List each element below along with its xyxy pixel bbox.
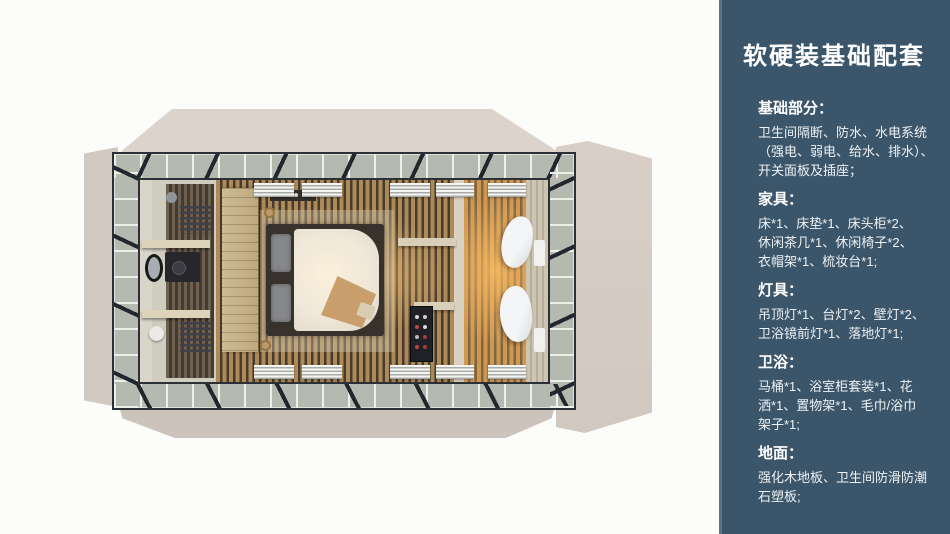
warm-lit-floor — [464, 180, 526, 382]
bed — [266, 224, 384, 336]
section-flooring: 地面： 强化木地板、卫生间防滑防潮 石塑板; — [758, 444, 936, 506]
pillow — [271, 284, 291, 322]
ceiling-beam — [436, 365, 474, 379]
towel-radiator — [180, 206, 212, 234]
bedding-roll — [534, 240, 545, 266]
section-basics: 基础部分： 卫生间隔断、防水、水电系统 （强电、弱电、给水、排水）、 开关面板及… — [758, 99, 936, 180]
section-line: 架子*1; — [758, 415, 936, 434]
section-line: 休闲茶几*1、休闲椅子*2、 — [758, 233, 936, 252]
section-heading: 基础部分： — [758, 99, 936, 119]
section-line: 强化木地板、卫生间防滑防潮 — [758, 468, 936, 487]
ceiling-beam — [488, 183, 526, 197]
minibar-bottles — [415, 315, 419, 319]
section-line: 开关面板及插座； — [758, 161, 936, 180]
ceiling-beam — [488, 365, 526, 379]
section-line: 石塑板; — [758, 487, 936, 506]
ceiling-beam — [390, 183, 430, 197]
washbasin-cabinet — [165, 252, 200, 282]
spec-sections: 基础部分： 卫生间隔断、防水、水电系统 （强电、弱电、给水、排水）、 开关面板及… — [758, 99, 936, 506]
section-line: 吊顶灯*1、台灯*2、壁灯*2、 — [758, 305, 936, 324]
ceiling-beam — [254, 183, 294, 197]
open-shelf — [398, 238, 456, 246]
section-line: 床*1、床垫*1、床头柜*2、 — [758, 214, 936, 233]
floorplan-render — [0, 0, 719, 534]
bathroom-shelf — [142, 310, 210, 318]
basket — [264, 207, 275, 218]
bedding-roll — [534, 328, 545, 352]
section-furniture: 家具： 床*1、床垫*1、床头柜*2、 休闲茶几*1、休闲椅子*2、 衣帽架*1… — [758, 190, 936, 271]
divider-wall — [454, 180, 464, 382]
frame-braces-bottom — [114, 384, 574, 408]
ceiling-beam — [390, 365, 430, 379]
section-line: 卫生间隔断、防水、水电系统 — [758, 123, 936, 142]
minibar-cabinet — [410, 306, 433, 362]
section-heading: 地面： — [758, 444, 936, 464]
section-heading: 卫浴： — [758, 353, 936, 373]
section-heading: 灯具： — [758, 281, 936, 301]
steel-frame-walkway — [112, 152, 576, 410]
ceiling-beam — [436, 183, 474, 197]
section-line: 衣帽架*1、梳妆台*1; — [758, 252, 936, 271]
shower-head — [166, 192, 177, 203]
section-line: 马桶*1、浴室柜套装*1、花 — [758, 377, 936, 396]
panel-title: 软硬装基础配套 — [743, 42, 936, 72]
headboard-panel — [222, 188, 258, 352]
section-heading: 家具： — [758, 190, 936, 210]
section-line: （强电、弱电、给水、排水）、 — [758, 142, 936, 161]
frame-braces-left — [114, 154, 138, 408]
ceiling-beam — [254, 365, 294, 379]
frame-braces-top — [114, 154, 574, 178]
ceiling-beam — [302, 183, 342, 197]
room-interior — [138, 178, 550, 384]
towel-radiator — [180, 322, 212, 352]
pillow — [271, 234, 291, 272]
frame-braces-right — [550, 154, 574, 408]
section-sanitary: 卫浴： 马桶*1、浴室柜套装*1、花 洒*1、置物架*1、毛巾/浴巾 架子*1; — [758, 353, 936, 434]
bathroom-shelf — [142, 240, 210, 248]
section-line: 洒*1、置物架*1、毛巾/浴巾 — [758, 396, 936, 415]
bathroom-zone — [140, 180, 216, 382]
section-lighting: 灯具： 吊顶灯*1、台灯*2、壁灯*2、 卫浴镜前灯*1、落地灯*1; — [758, 281, 936, 343]
ceiling-beam — [302, 365, 342, 379]
basket — [260, 340, 271, 351]
section-line: 卫浴镜前灯*1、落地灯*1; — [758, 324, 936, 343]
toilet — [149, 326, 164, 341]
info-panel: 软硬装基础配套 基础部分： 卫生间隔断、防水、水电系统 （强电、弱电、给水、排水… — [719, 0, 950, 534]
vanity-mirror — [145, 254, 163, 282]
